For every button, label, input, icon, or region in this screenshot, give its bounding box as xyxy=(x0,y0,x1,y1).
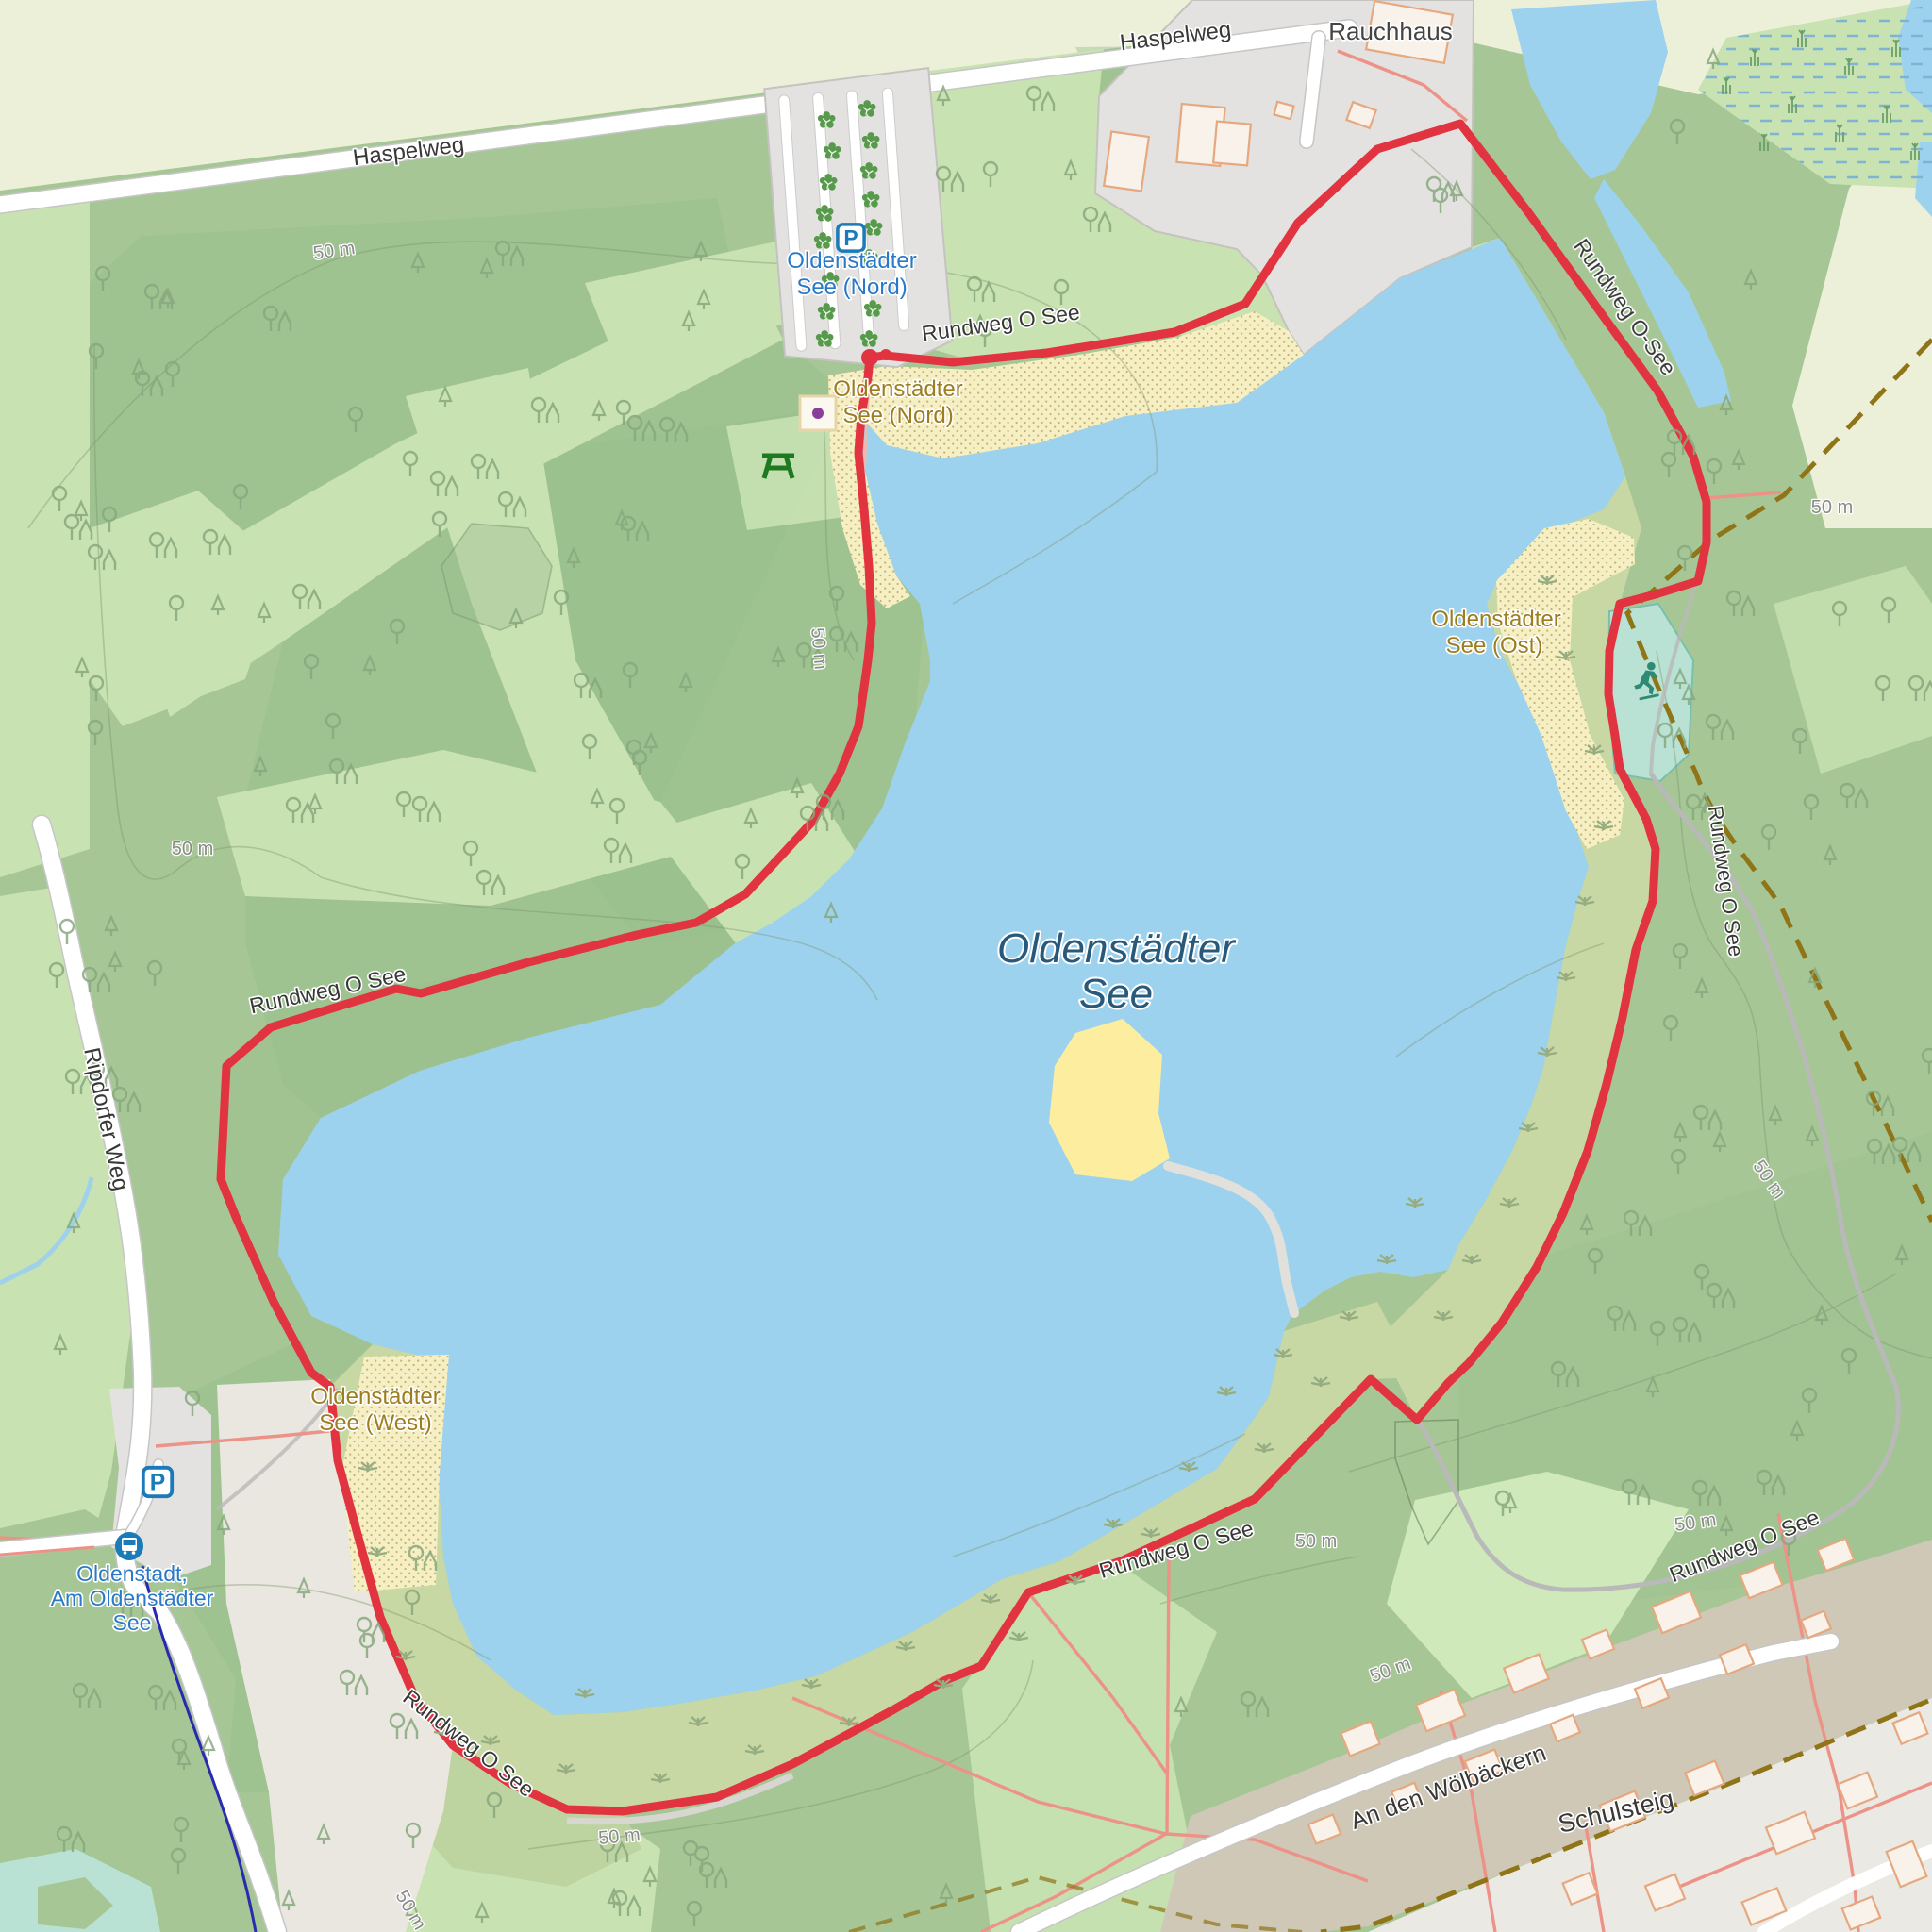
svg-text:50 m: 50 m xyxy=(1295,1531,1337,1552)
svg-text:See (West): See (West) xyxy=(319,1410,432,1436)
svg-text:Rauchhaus: Rauchhaus xyxy=(1328,17,1453,45)
svg-text:See (Nord): See (Nord) xyxy=(796,275,907,300)
svg-text:Oldenstädter: Oldenstädter xyxy=(833,376,962,402)
svg-text:Am Oldenstädter: Am Oldenstädter xyxy=(51,1586,214,1610)
svg-text:Oldenstädter: Oldenstädter xyxy=(1431,607,1560,632)
svg-text:Oldenstädter: Oldenstädter xyxy=(997,925,1237,972)
svg-text:P: P xyxy=(150,1471,165,1496)
svg-text:50 m: 50 m xyxy=(1811,497,1853,518)
svg-text:Oldenstadt,: Oldenstadt, xyxy=(76,1561,188,1586)
svg-text:See (Ost): See (Ost) xyxy=(1446,633,1543,658)
svg-text:Oldenstädter: Oldenstädter xyxy=(787,248,916,274)
svg-text:P: P xyxy=(843,225,858,250)
svg-text:50 m: 50 m xyxy=(807,626,831,670)
svg-text:See: See xyxy=(1079,971,1153,1017)
svg-text:50 m: 50 m xyxy=(597,1824,641,1849)
svg-text:50 m: 50 m xyxy=(172,839,213,859)
svg-text:See (Nord): See (Nord) xyxy=(842,403,953,428)
svg-text:See: See xyxy=(113,1610,152,1635)
svg-text:Oldenstädter: Oldenstädter xyxy=(310,1384,440,1409)
